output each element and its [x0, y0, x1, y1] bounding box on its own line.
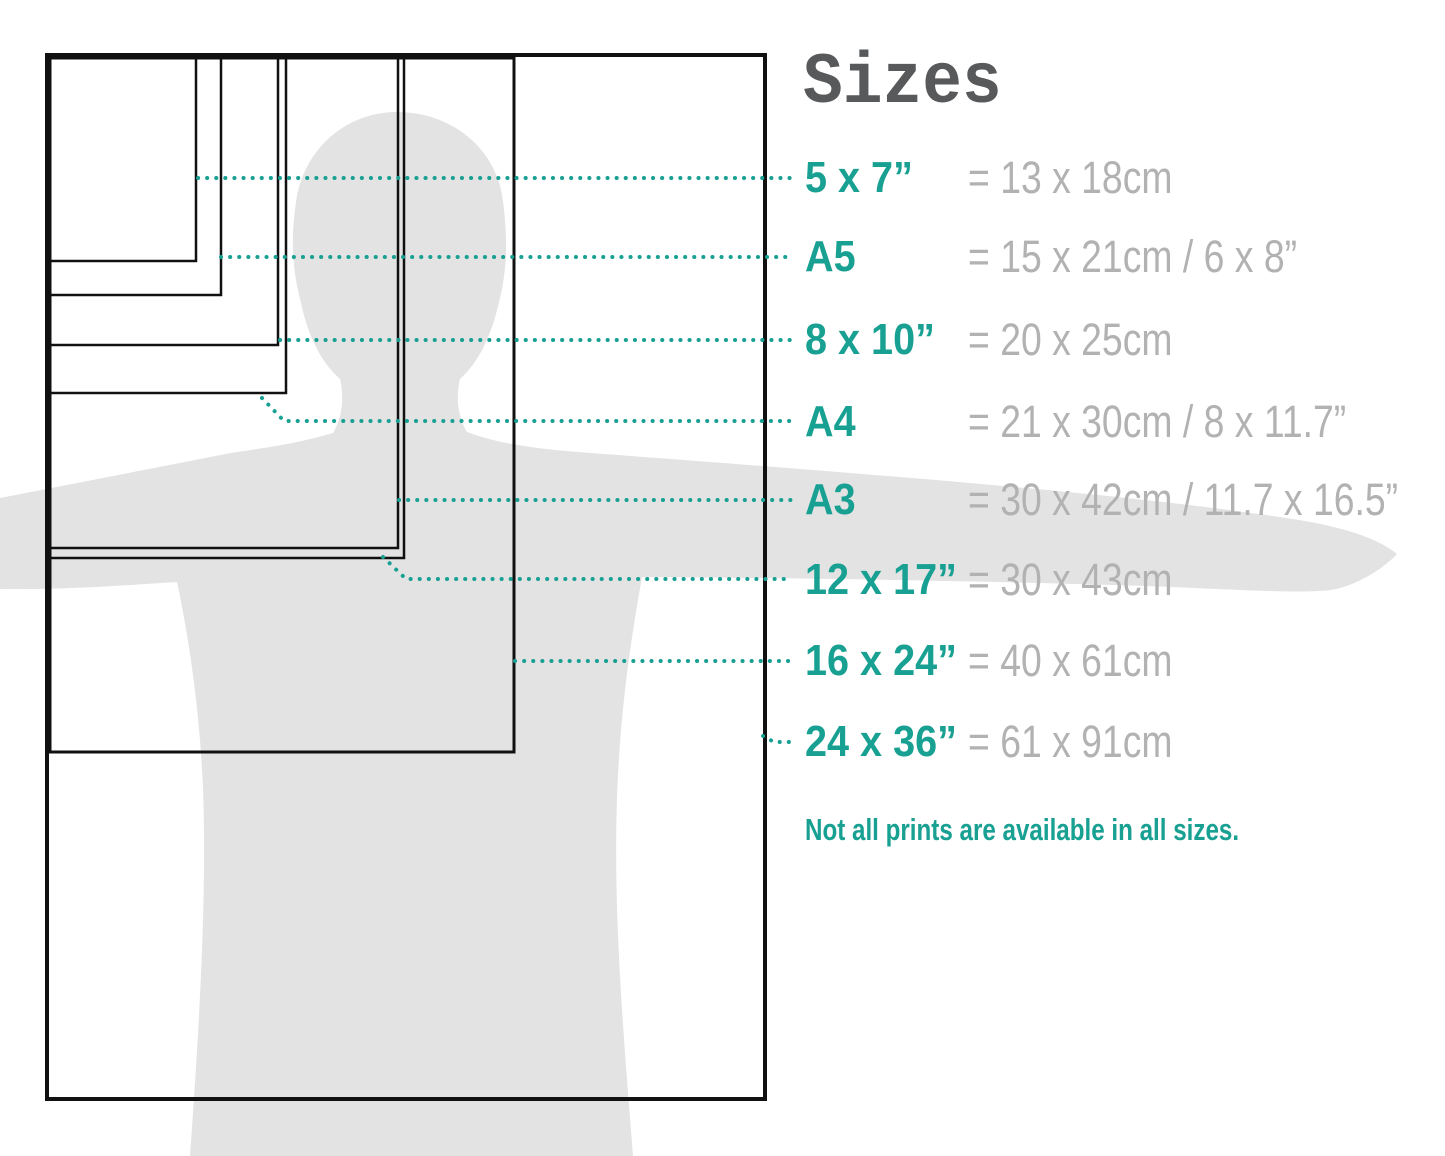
print-size-rect-8x10 — [50, 58, 278, 345]
size-metric: = 61 x 91cm — [968, 720, 1173, 764]
size-label: 16 x 24” — [805, 639, 957, 683]
print-size-guide: Sizes 5 x 7” = 13 x 18cm A5 = 15 x 21cm … — [0, 0, 1445, 1156]
size-row-12x17: 12 x 17” = 30 x 43cm — [0, 558, 1445, 602]
size-row-a3: A3 = 30 x 42cm / 11.7 x 16.5” — [0, 478, 1445, 522]
size-label: 12 x 17” — [805, 558, 957, 602]
size-label: A5 — [805, 235, 856, 279]
size-metric: = 15 x 21cm / 6 x 8” — [968, 235, 1297, 279]
size-row-16x24: 16 x 24” = 40 x 61cm — [0, 639, 1445, 683]
size-label: A4 — [805, 400, 856, 444]
page-title: Sizes — [803, 42, 1002, 124]
size-metric: = 20 x 25cm — [968, 318, 1173, 362]
size-label: A3 — [805, 478, 856, 522]
availability-note: Not all prints are available in all size… — [805, 812, 1239, 848]
size-row-a4: A4 = 21 x 30cm / 8 x 11.7” — [0, 400, 1445, 444]
size-metric: = 40 x 61cm — [968, 639, 1173, 683]
size-label: 5 x 7” — [805, 156, 913, 200]
size-metric: = 21 x 30cm / 8 x 11.7” — [968, 400, 1346, 444]
size-metric: = 30 x 43cm — [968, 558, 1173, 602]
size-row-5x7: 5 x 7” = 13 x 18cm — [0, 156, 1445, 200]
size-row-a5: A5 = 15 x 21cm / 6 x 8” — [0, 235, 1445, 279]
size-metric: = 13 x 18cm — [968, 156, 1173, 200]
size-row-24x36: 24 x 36” = 61 x 91cm — [0, 720, 1445, 764]
size-label: 24 x 36” — [805, 720, 957, 764]
size-metric: = 30 x 42cm / 11.7 x 16.5” — [968, 478, 1398, 522]
size-label: 8 x 10” — [805, 318, 935, 362]
size-row-8x10: 8 x 10” = 20 x 25cm — [0, 318, 1445, 362]
